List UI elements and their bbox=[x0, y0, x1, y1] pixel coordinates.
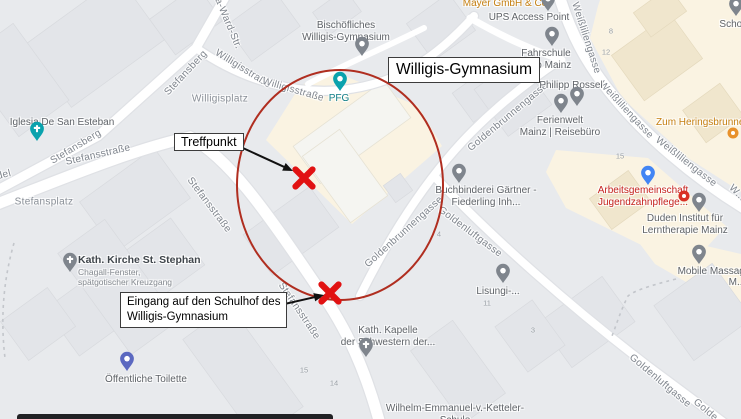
bottom-bar-partial bbox=[17, 414, 333, 419]
eingang-schulhof-label-box: Eingang auf den Schulhof des Willigis-Gy… bbox=[120, 292, 287, 328]
eingang-line-1: Eingang auf den Schulhof des bbox=[127, 295, 280, 310]
map-base-layer bbox=[0, 0, 741, 419]
map-canvas[interactable]: Maria-Ward-Str.StefansbergWilligisstraße… bbox=[0, 0, 741, 419]
eingang-line-2: Willigis-Gymnasium bbox=[127, 310, 280, 325]
treffpunkt-label-box: Treffpunkt bbox=[174, 133, 244, 151]
willigis-gymnasium-title-box: Willigis-Gymnasium bbox=[388, 57, 540, 83]
